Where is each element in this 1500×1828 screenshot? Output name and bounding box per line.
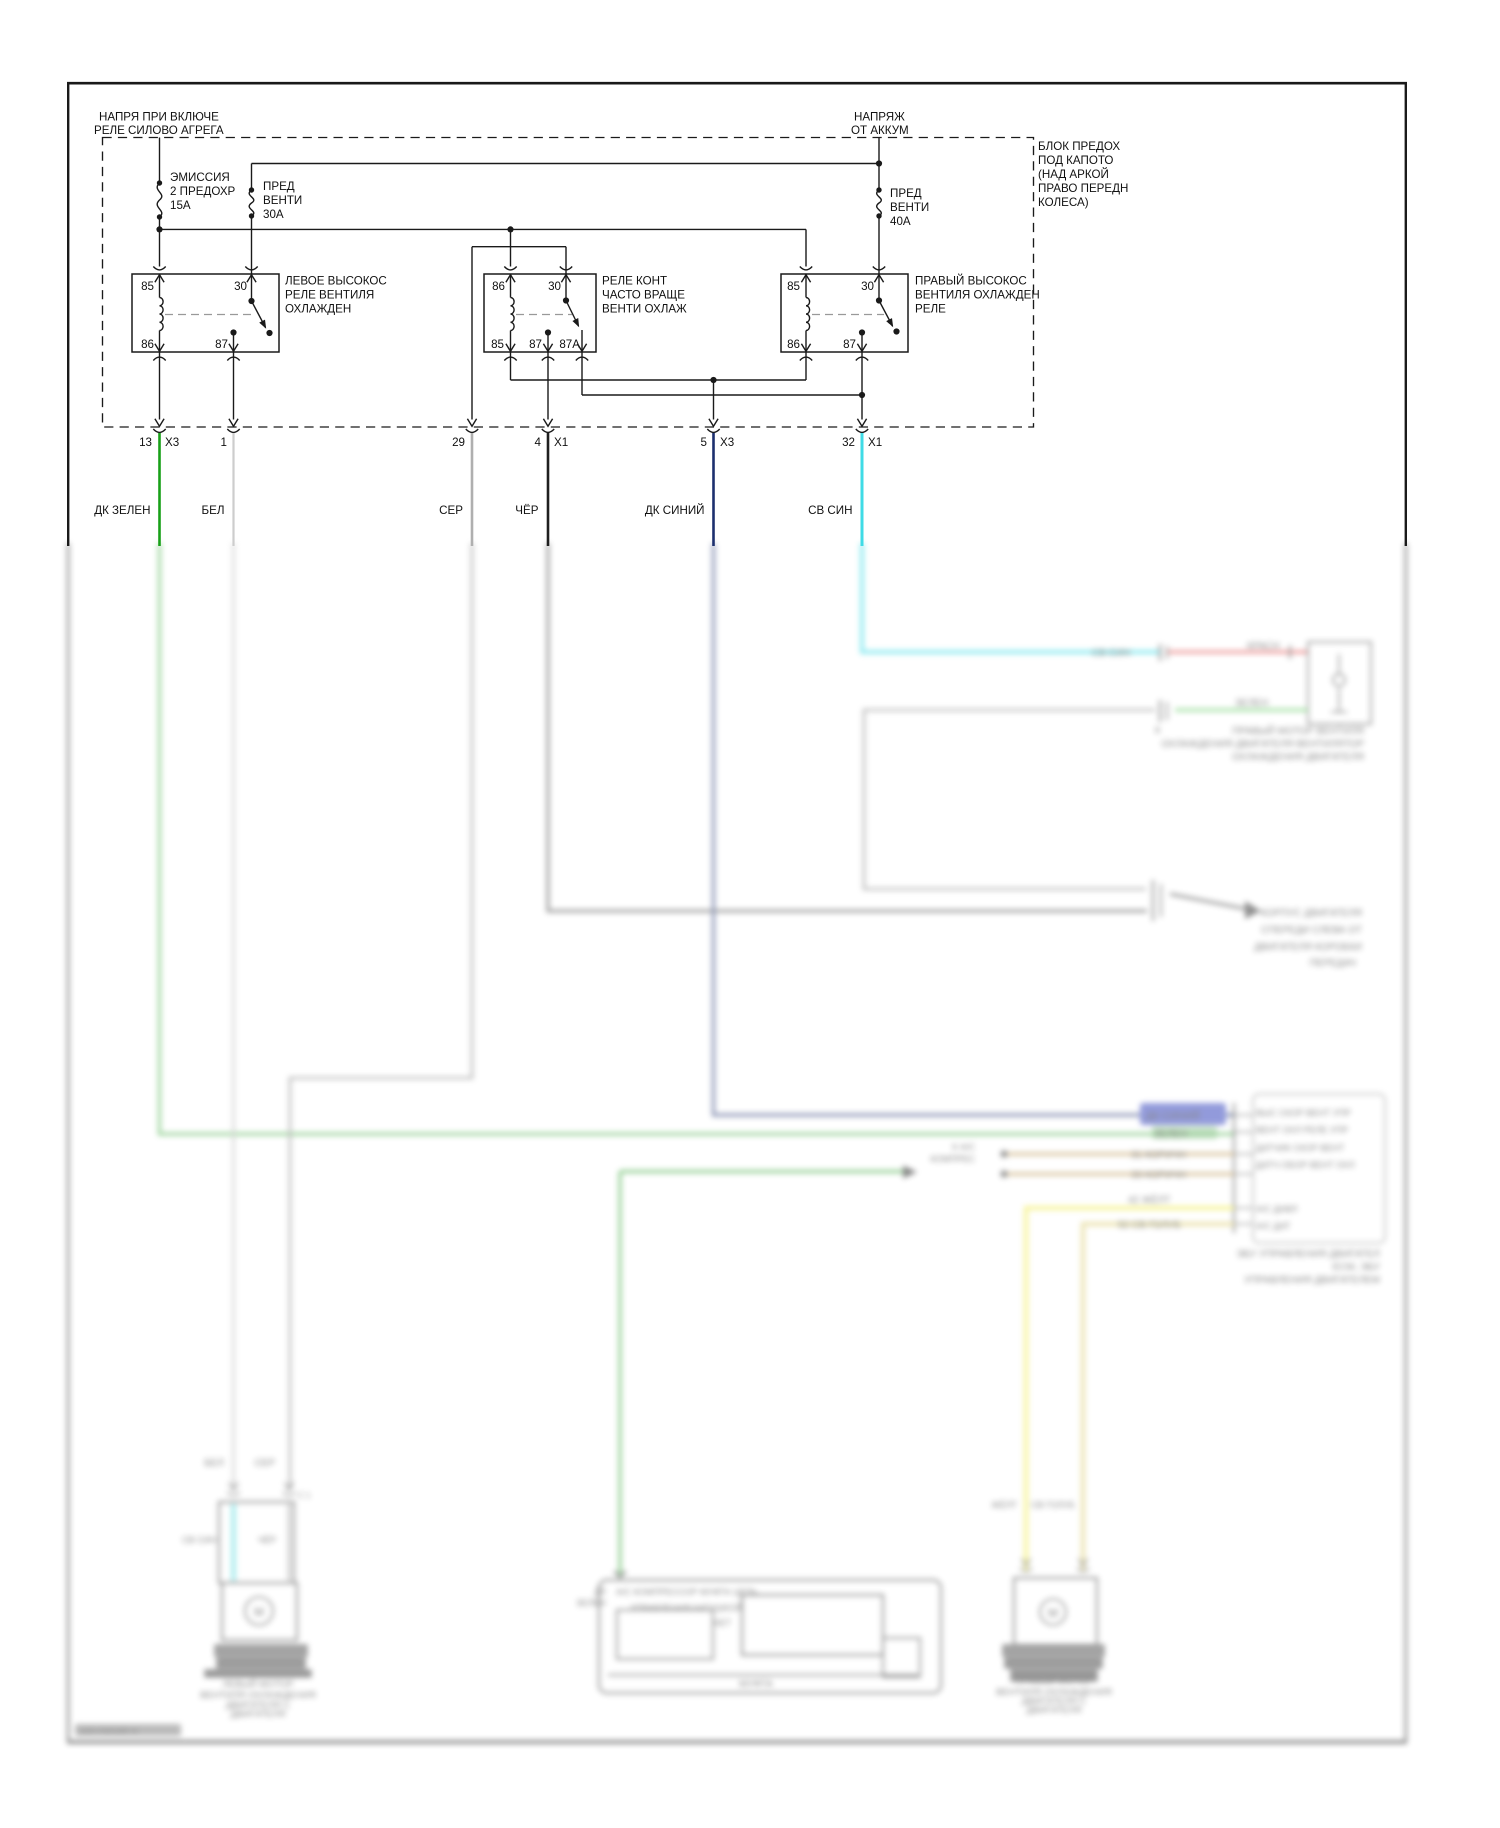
svg-text:X3: X3 xyxy=(720,436,734,449)
svg-text:86: 86 xyxy=(492,280,505,293)
svg-text:РЕЛЕ: РЕЛЕ xyxy=(915,303,946,316)
svg-text:ЧЁР: ЧЁР xyxy=(515,504,538,517)
svg-text:4: 4 xyxy=(535,436,542,449)
svg-text:87: 87 xyxy=(215,338,228,351)
svg-text:РЕЛЕ КОНТ: РЕЛЕ КОНТ xyxy=(602,275,667,288)
svg-text:БЕЛ: БЕЛ xyxy=(202,504,225,517)
svg-text:85: 85 xyxy=(491,338,504,351)
svg-text:5: 5 xyxy=(701,436,707,449)
svg-text:ПОД КАПОТО: ПОД КАПОТО xyxy=(1038,154,1113,167)
svg-text:ПРЕД: ПРЕД xyxy=(890,187,922,200)
svg-text:РЕЛЕ ВЕНТИЛЯ: РЕЛЕ ВЕНТИЛЯ xyxy=(285,289,374,302)
svg-text:ВЕНТИЛЯ ОХЛАЖДЕН: ВЕНТИЛЯ ОХЛАЖДЕН xyxy=(915,289,1040,302)
svg-text:15А: 15А xyxy=(170,199,191,212)
svg-text:ПРАВЫЙ ВЫСОКОС: ПРАВЫЙ ВЫСОКОС xyxy=(915,275,1027,288)
svg-text:ПРАВО ПЕРЕДН: ПРАВО ПЕРЕДН xyxy=(1038,182,1128,195)
svg-text:40А: 40А xyxy=(890,215,911,228)
svg-text:30: 30 xyxy=(548,280,561,293)
svg-text:1: 1 xyxy=(221,436,227,449)
svg-text:29: 29 xyxy=(452,436,465,449)
svg-text:85: 85 xyxy=(787,280,800,293)
svg-text:ВЕНТИ: ВЕНТИ xyxy=(263,194,302,207)
svg-text:ВЕНТИ: ВЕНТИ xyxy=(890,201,929,214)
svg-text:НАПРЯЖ: НАПРЯЖ xyxy=(854,111,905,124)
svg-text:ДК ЗЕЛЕН: ДК ЗЕЛЕН xyxy=(94,504,150,517)
svg-text:РЕЛЕ СИЛОВО АГРЕГА: РЕЛЕ СИЛОВО АГРЕГА xyxy=(94,124,224,137)
svg-text:2 ПРЕДОХР: 2 ПРЕДОХР xyxy=(170,185,236,198)
svg-text:ДК СИНИЙ: ДК СИНИЙ xyxy=(645,504,705,517)
svg-text:X1: X1 xyxy=(554,436,568,449)
svg-text:30: 30 xyxy=(861,280,874,293)
svg-text:86: 86 xyxy=(141,338,154,351)
svg-text:КОЛЕСА): КОЛЕСА) xyxy=(1038,196,1089,209)
svg-text:ВЕНТИ ОХЛАЖ: ВЕНТИ ОХЛАЖ xyxy=(602,303,687,316)
svg-text:НАПРЯ ПРИ ВКЛЮЧЕ: НАПРЯ ПРИ ВКЛЮЧЕ xyxy=(99,111,219,124)
svg-text:СЕР: СЕР xyxy=(439,504,463,517)
svg-text:ПРЕД: ПРЕД xyxy=(263,180,295,193)
svg-text:ЭМИССИЯ: ЭМИССИЯ xyxy=(170,171,230,184)
svg-text:БЛОК ПРЕДОХ: БЛОК ПРЕДОХ xyxy=(1038,140,1120,153)
svg-text:85: 85 xyxy=(141,280,154,293)
svg-text:13: 13 xyxy=(139,436,152,449)
svg-text:X1: X1 xyxy=(868,436,882,449)
svg-text:87: 87 xyxy=(529,338,542,351)
svg-text:ЧАСТО ВРАЩЕ: ЧАСТО ВРАЩЕ xyxy=(602,289,685,302)
svg-text:ЛЕВОЕ ВЫСОКОС: ЛЕВОЕ ВЫСОКОС xyxy=(285,275,387,288)
svg-text:86: 86 xyxy=(787,338,800,351)
svg-text:ОТ АККУМ: ОТ АККУМ xyxy=(851,124,909,137)
svg-text:X3: X3 xyxy=(165,436,179,449)
svg-text:СВ СИН: СВ СИН xyxy=(808,504,852,517)
svg-text:30А: 30А xyxy=(263,208,284,221)
svg-text:ОХЛАЖДЕН: ОХЛАЖДЕН xyxy=(285,303,351,316)
svg-text:87: 87 xyxy=(843,338,856,351)
svg-text:30: 30 xyxy=(234,280,247,293)
svg-text:32: 32 xyxy=(842,436,855,449)
svg-text:(НАД АРКОЙ: (НАД АРКОЙ xyxy=(1038,168,1109,181)
